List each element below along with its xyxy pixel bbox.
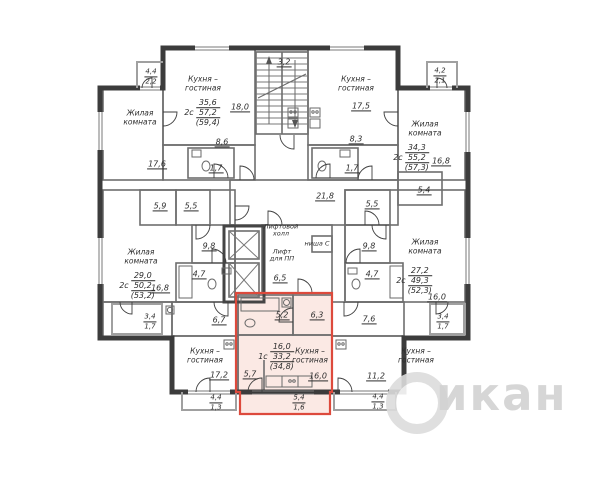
area-label: 6,7 [212, 315, 227, 324]
area-label: 17,5 [351, 101, 371, 110]
balcony-area-label: 4,41,3 [371, 392, 384, 411]
area-label: 5,4 [417, 185, 432, 194]
balcony-area-label: 3,41,7 [143, 312, 156, 331]
area-label: 21,8 [315, 191, 335, 200]
area-label: 16,0 [308, 371, 328, 380]
area-label: 8,3 [349, 134, 364, 143]
room-name-label: Кухня –гостиная [292, 347, 328, 364]
area-label: 9,8 [362, 241, 377, 250]
area-label: 6,5 [273, 273, 288, 282]
room-name-label: Жилаякомната [408, 120, 441, 137]
room-name-label: Жилаякомната [123, 109, 156, 126]
room-name-label: ниша С [304, 240, 329, 247]
apartment-summary-label: 2с35,657,2(59,4) [184, 98, 220, 128]
area-label: 3,2 [277, 57, 292, 66]
balcony-area-label: 5,41,6 [292, 393, 305, 412]
room-name-label: Жилаякомната [408, 238, 441, 255]
apartment-summary-label: 1с16,033,2(34,8) [258, 342, 294, 372]
area-label: 7,6 [362, 314, 377, 323]
room-name-label: Лифтовойхолл [264, 224, 298, 239]
balcony-area-label: 4,22,1 [433, 66, 446, 85]
area-label: 17,6 [147, 159, 167, 168]
area-label: 4,7 [365, 269, 380, 278]
area-label: 5,2 [275, 310, 290, 319]
area-label: 17,2 [209, 370, 229, 379]
area-label: 5,5 [184, 201, 199, 210]
area-label: 1,7 [209, 163, 224, 172]
balcony-area-label: 4,42,2 [144, 67, 157, 86]
area-label: 9,8 [202, 241, 217, 250]
apartment-summary-label: 2с27,249,3(52,3) [396, 266, 432, 296]
elevator-icon [224, 226, 264, 302]
area-label: 6,3 [310, 310, 325, 319]
area-label: 5,5 [365, 199, 380, 208]
room-name-label: Жилаякомната [124, 248, 157, 265]
area-label: 11,2 [366, 371, 386, 380]
room-name-label: Кухня –гостиная [187, 347, 223, 364]
area-label: 4,7 [192, 269, 207, 278]
room-name-label: Лифтдля ПП [270, 249, 294, 264]
watermark: икан [436, 368, 568, 421]
apartment-summary-label: 2с34,355,2(57,3) [393, 143, 429, 173]
balcony-area-label: 4,41,3 [209, 393, 222, 412]
room-name-label: Кухня –гостиная [185, 75, 221, 92]
area-label: 5,9 [153, 201, 168, 210]
apartment-summary-label: 2с29,050,2(53,2) [119, 271, 155, 301]
floor-plan: Кухня –гостинаяЖилаякомнатаКухня –гостин… [0, 0, 600, 480]
area-label: 5,7 [243, 369, 258, 378]
area-label: 16,8 [431, 156, 451, 165]
room-name-label: Кухня –гостиная [398, 347, 434, 364]
area-label: 1,7 [345, 163, 360, 172]
room-name-label: Кухня –гостиная [338, 75, 374, 92]
area-label: 18,0 [230, 102, 250, 111]
balcony-area-label: 3,41,7 [436, 312, 449, 331]
area-label: 8,6 [215, 137, 230, 146]
